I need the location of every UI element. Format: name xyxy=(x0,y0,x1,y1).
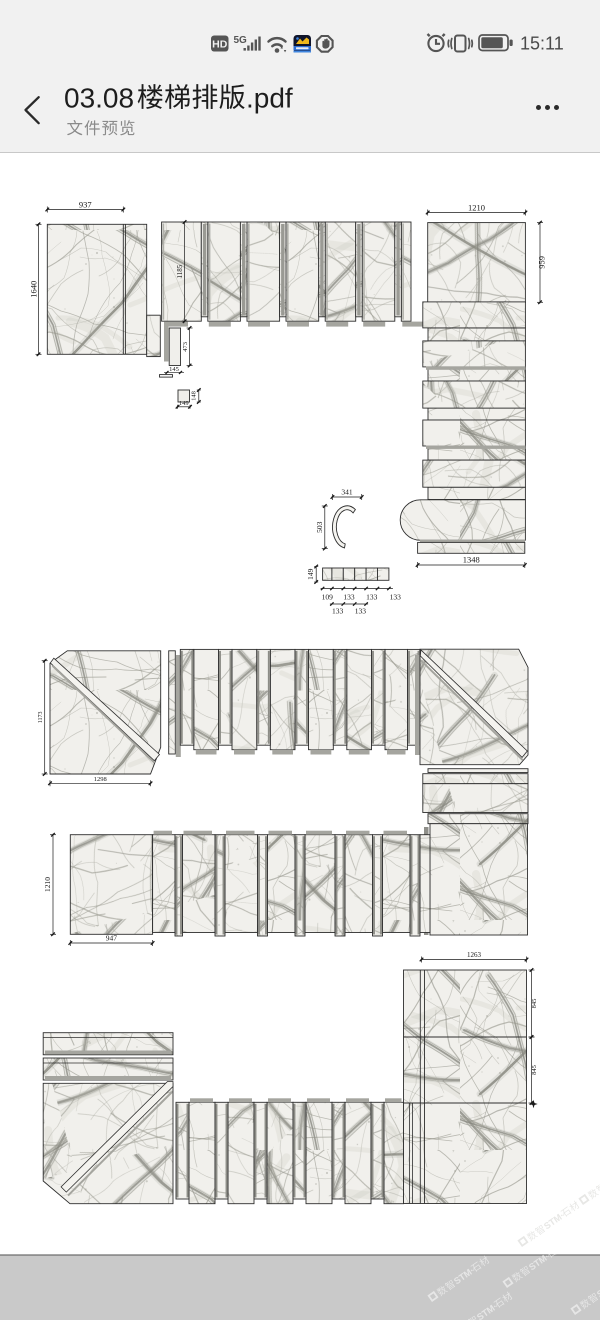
svg-text:473: 473 xyxy=(182,342,189,352)
svg-text:148: 148 xyxy=(191,391,198,401)
svg-text:1263: 1263 xyxy=(467,951,482,959)
svg-text:149: 149 xyxy=(306,568,315,580)
svg-text:845: 845 xyxy=(531,999,538,1009)
svg-text:.pdf: .pdf xyxy=(246,83,293,114)
svg-text:15:11: 15:11 xyxy=(520,34,564,54)
svg-text:1640: 1640 xyxy=(29,281,39,298)
svg-text:5G: 5G xyxy=(234,35,248,46)
svg-text:503: 503 xyxy=(315,521,324,533)
svg-text:1173: 1173 xyxy=(38,712,44,724)
svg-text:03.08: 03.08 xyxy=(64,83,134,114)
svg-text:HD: HD xyxy=(212,39,228,51)
svg-text:1298: 1298 xyxy=(94,776,107,783)
svg-text:1185: 1185 xyxy=(176,264,184,278)
svg-text:149: 149 xyxy=(179,400,189,407)
svg-text:133: 133 xyxy=(332,607,344,616)
svg-text:341: 341 xyxy=(341,488,353,497)
svg-text:937: 937 xyxy=(79,200,92,210)
svg-text:947: 947 xyxy=(106,934,118,943)
svg-text:959: 959 xyxy=(537,256,547,269)
svg-text:133: 133 xyxy=(366,593,378,602)
svg-text:133: 133 xyxy=(343,593,355,602)
svg-text:1348: 1348 xyxy=(463,555,480,565)
svg-text:1210: 1210 xyxy=(468,203,485,213)
svg-text:133: 133 xyxy=(355,607,367,616)
svg-text:845: 845 xyxy=(531,1065,538,1075)
svg-text:109: 109 xyxy=(322,593,334,602)
svg-text:133: 133 xyxy=(390,593,402,602)
svg-text:1210: 1210 xyxy=(43,877,52,892)
